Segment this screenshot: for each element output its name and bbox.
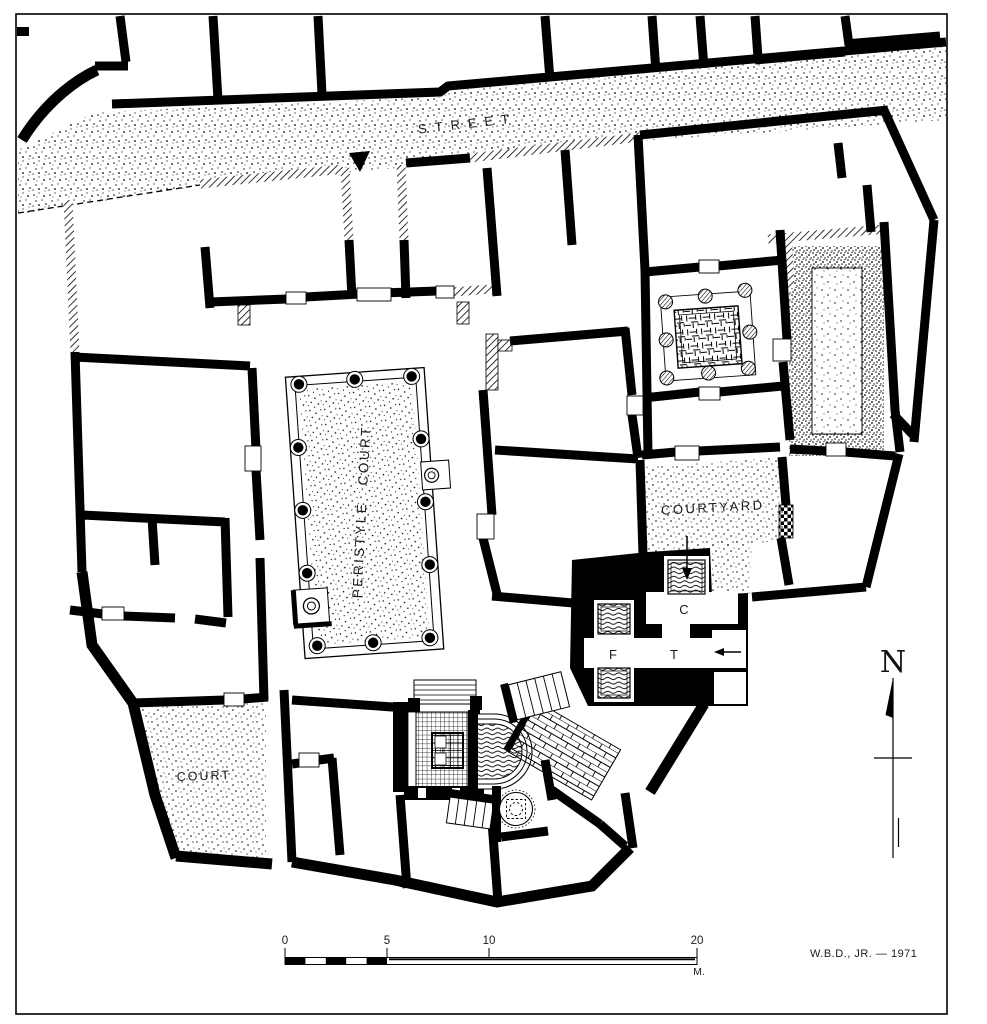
scale-bar: 0 5 10 20 M.	[282, 935, 705, 978]
scale-tick-5: 5	[384, 935, 390, 947]
north-arrow: N	[874, 645, 912, 858]
scale-unit: M.	[693, 966, 705, 978]
court-label: COURT	[177, 768, 232, 784]
impluvium-pool	[674, 306, 742, 368]
room-f-t-corridor	[584, 638, 712, 668]
scale-tick-0: 0	[282, 935, 288, 947]
furnace-mouth	[408, 680, 482, 712]
east-basin	[421, 460, 451, 490]
street-band	[18, 46, 946, 214]
garden-room	[789, 246, 884, 456]
room-f-label: F	[609, 647, 617, 662]
signature: W.B.D., JR. — 1971	[810, 948, 917, 960]
floor-plan-drawing: PERISTYLE COURT	[0, 0, 987, 1024]
checkered-pier	[779, 505, 793, 538]
peristyle-court: PERISTYLE COURT	[276, 365, 461, 659]
room-t-label: T	[670, 647, 678, 662]
scale-tick-10: 10	[483, 935, 496, 947]
courtyard-floor-arm	[712, 537, 752, 597]
scale-tick-20: 20	[691, 935, 704, 947]
north-label: N	[880, 645, 906, 680]
hatched-pier	[486, 334, 498, 390]
room-c-label: C	[679, 602, 688, 617]
small-court	[654, 283, 760, 386]
furnace-circle	[492, 786, 548, 842]
staircase-lower	[444, 789, 496, 829]
plan-page: PERISTYLE COURT	[0, 0, 987, 1024]
well-room	[291, 588, 331, 627]
